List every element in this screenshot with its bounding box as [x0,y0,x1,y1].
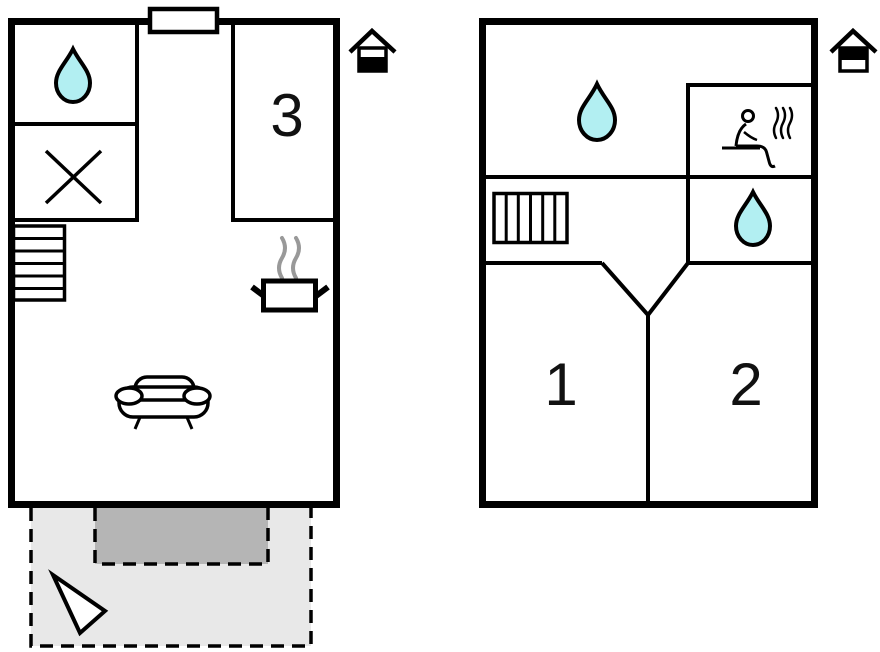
patio-area [95,508,268,564]
ground-level-icon [350,31,395,73]
floor-plan-page: 3 [0,0,880,652]
upper-level-icon [831,31,876,71]
entrance-door [150,9,217,32]
stairs-icon-ground [14,226,65,300]
floor-plan-drawing: 3 [0,0,880,652]
ground-floor-plan: 3 [12,9,337,505]
stairs-icon-upper [494,194,567,243]
terrace-area [31,508,311,646]
room-label-1: 1 [544,351,577,418]
first-floor-plan: 1 2 [483,22,815,505]
room-label-3: 3 [270,82,303,149]
room-label-2: 2 [729,351,762,418]
